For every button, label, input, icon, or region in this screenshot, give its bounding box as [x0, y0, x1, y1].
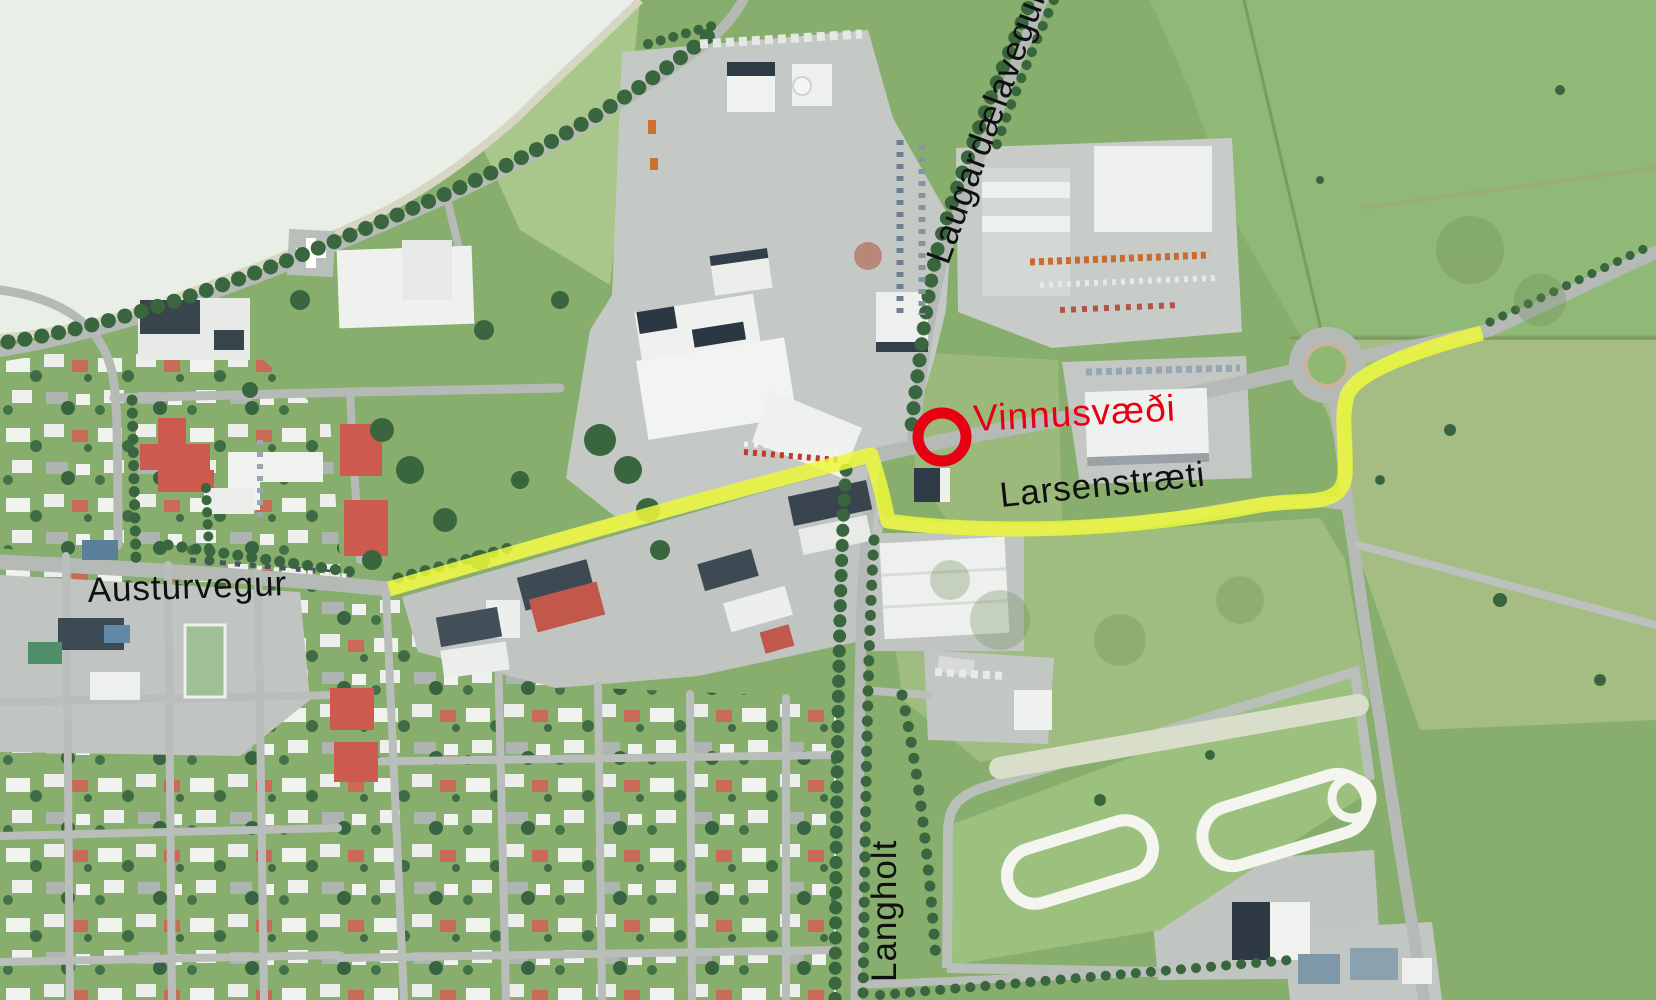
- round-tank: [854, 242, 882, 270]
- container: [650, 158, 658, 170]
- warehouse-roof: [727, 62, 775, 76]
- track-building-roof: [1232, 902, 1270, 960]
- label-austurvegur: Austurvegur: [87, 564, 288, 610]
- container: [648, 120, 656, 134]
- bigbox-store: [1094, 146, 1212, 232]
- aerial-map: Austurvegur Larsenstræti Laugardælavegur…: [0, 0, 1656, 1000]
- blue-roof-building: [82, 540, 118, 560]
- business-building: [1014, 690, 1052, 730]
- label-langholt: Langholt: [865, 840, 904, 982]
- storage-dome: [793, 77, 811, 95]
- building: [1350, 948, 1398, 980]
- building: [1298, 954, 1340, 984]
- dairy-north-building: [709, 248, 772, 296]
- roof-stripe: [982, 216, 1070, 232]
- building: [1402, 958, 1432, 984]
- helipad: [287, 229, 335, 277]
- roundabout-island: [1306, 344, 1348, 386]
- hospital: [337, 240, 475, 328]
- roof-stripe: [982, 182, 1070, 198]
